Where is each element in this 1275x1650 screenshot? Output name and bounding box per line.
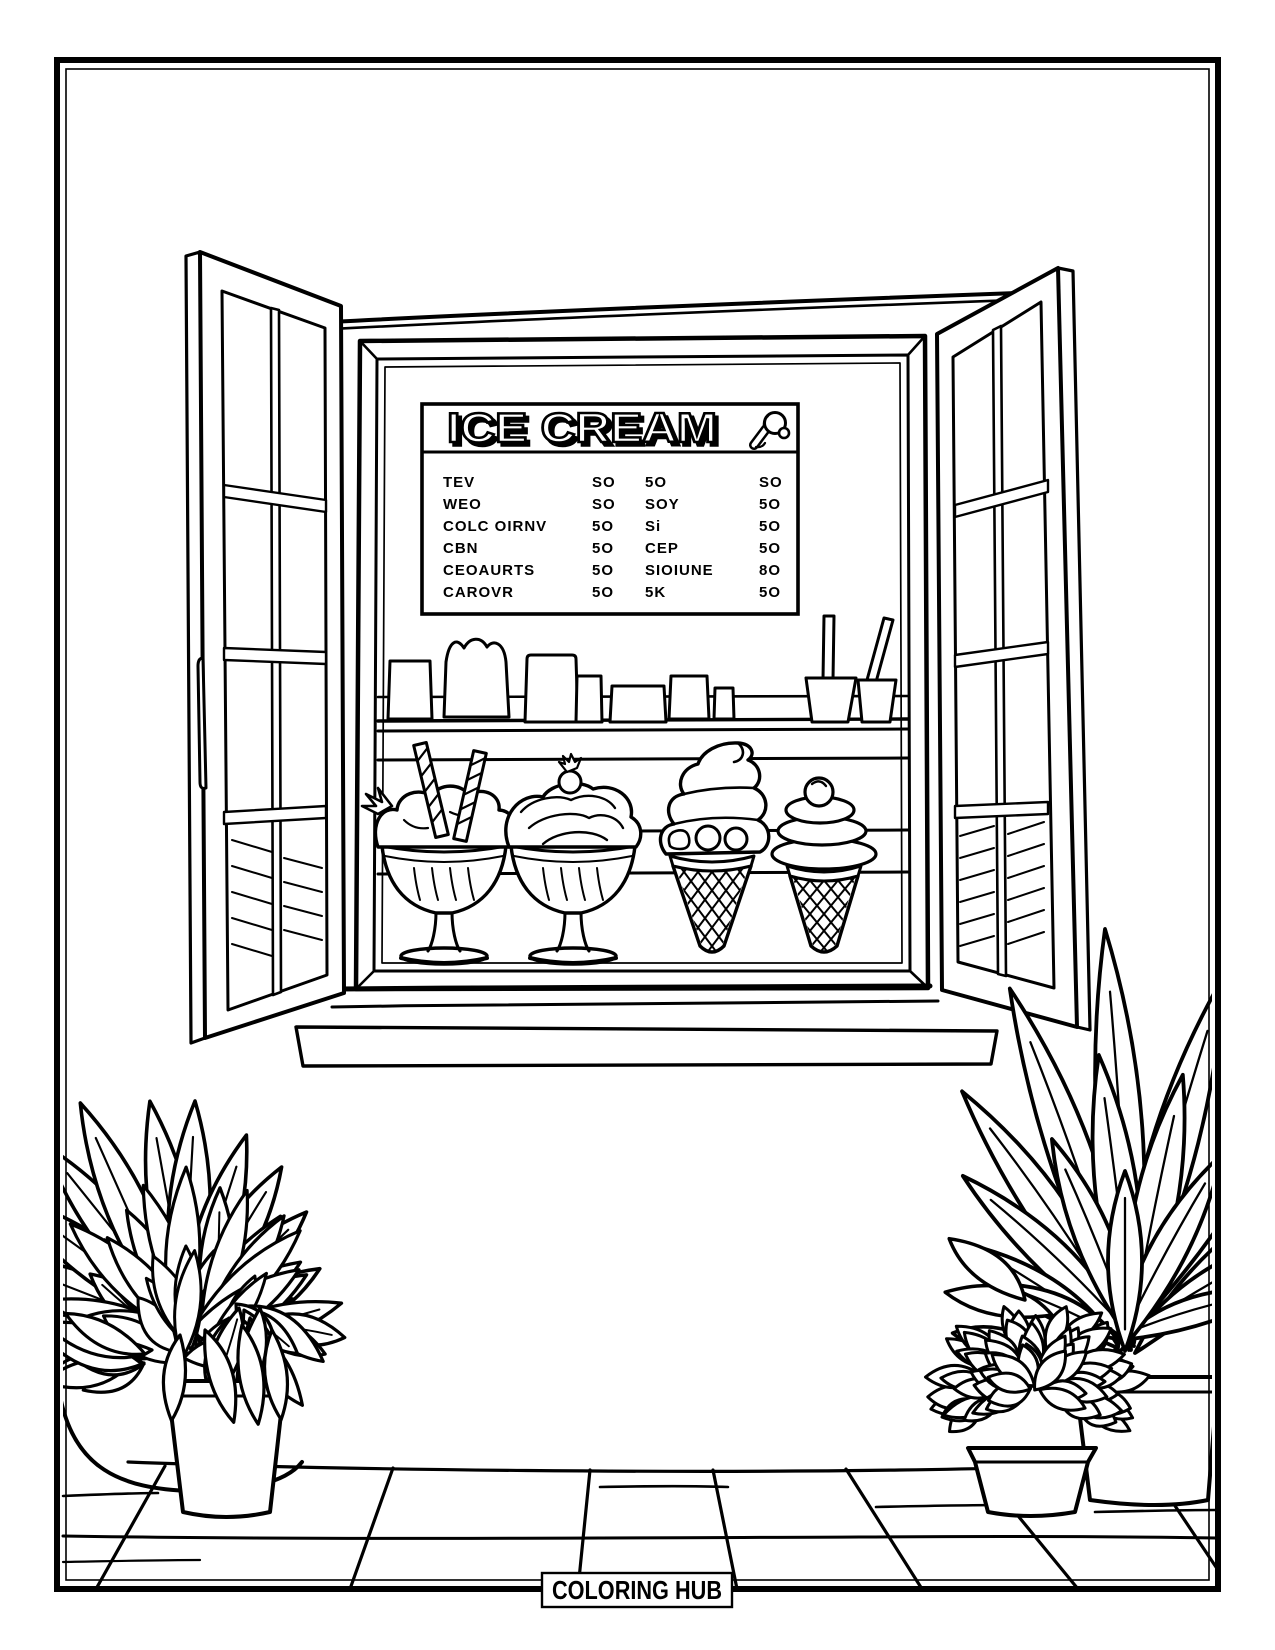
svg-text:5O: 5O <box>759 540 781 557</box>
svg-text:5O: 5O <box>759 584 781 601</box>
svg-text:SIOIUNE: SIOIUNE <box>645 562 714 579</box>
svg-text:5O: 5O <box>759 518 781 535</box>
svg-text:5O: 5O <box>645 474 667 491</box>
svg-text:COLC OIRNV: COLC OIRNV <box>443 518 547 535</box>
svg-text:Si: Si <box>645 518 661 535</box>
svg-text:5K: 5K <box>645 584 666 601</box>
svg-text:COLORING HUB: COLORING HUB <box>552 1575 722 1605</box>
svg-text:CAROVR: CAROVR <box>443 584 514 601</box>
svg-text:CEP: CEP <box>645 540 679 557</box>
svg-text:CEOAURTS: CEOAURTS <box>443 562 535 579</box>
svg-text:TEV: TEV <box>443 474 475 491</box>
svg-text:SO: SO <box>759 474 783 491</box>
svg-text:5O: 5O <box>592 562 614 579</box>
svg-text:SO: SO <box>592 496 616 513</box>
svg-text:5O: 5O <box>592 584 614 601</box>
svg-text:SO: SO <box>592 474 616 491</box>
svg-text:8O: 8O <box>759 562 781 579</box>
svg-text:5O: 5O <box>592 518 614 535</box>
svg-text:5O: 5O <box>759 496 781 513</box>
svg-text:5O: 5O <box>592 540 614 557</box>
svg-text:ICE CREAM: ICE CREAM <box>447 404 717 451</box>
svg-text:WEO: WEO <box>443 496 482 513</box>
svg-text:CBN: CBN <box>443 540 479 557</box>
svg-text:SOY: SOY <box>645 496 680 513</box>
